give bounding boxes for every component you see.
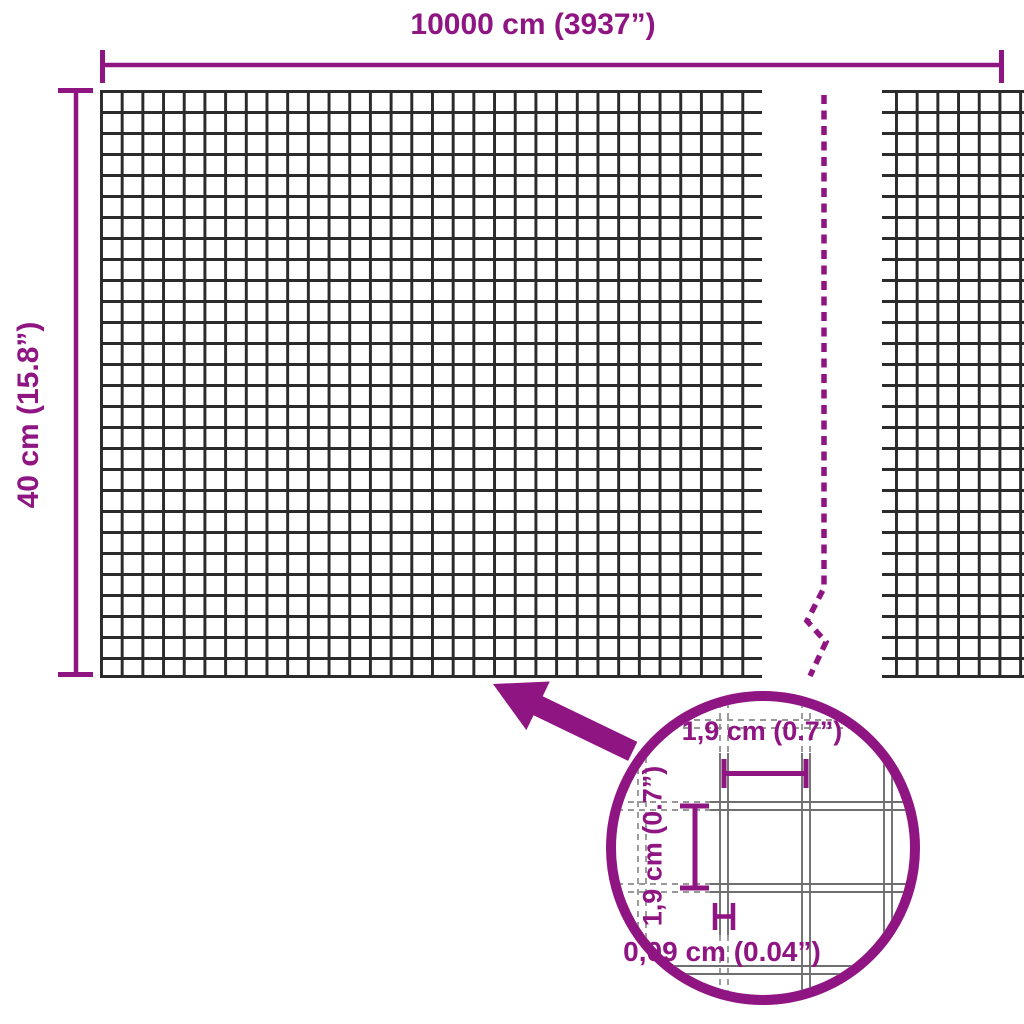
opening-height-dimension-icon — [680, 806, 709, 888]
height-dimension-label: 40 cm (15.8”) — [12, 322, 46, 509]
mesh-panel-main — [100, 90, 762, 678]
break-line-icon — [807, 95, 826, 676]
height-dimension-line-icon — [58, 91, 93, 675]
opening-width-dimension-icon — [724, 759, 806, 788]
product-dimension-diagram: 10000 cm (3937”) 40 cm (15.8”) 1,9 cm (0… — [0, 0, 1024, 1024]
mesh-panel-continuation — [882, 90, 1024, 678]
opening-height-label: 1,9 cm (0.7”) — [638, 766, 669, 927]
wire-thickness-label: 0,09 cm (0.04”) — [623, 936, 821, 968]
width-dimension-line-icon — [103, 50, 1002, 83]
opening-width-label: 1,9 cm (0.7”) — [682, 716, 843, 747]
wire-thickness-marker-icon — [715, 903, 733, 930]
width-dimension-label: 10000 cm (3937”) — [410, 8, 655, 42]
